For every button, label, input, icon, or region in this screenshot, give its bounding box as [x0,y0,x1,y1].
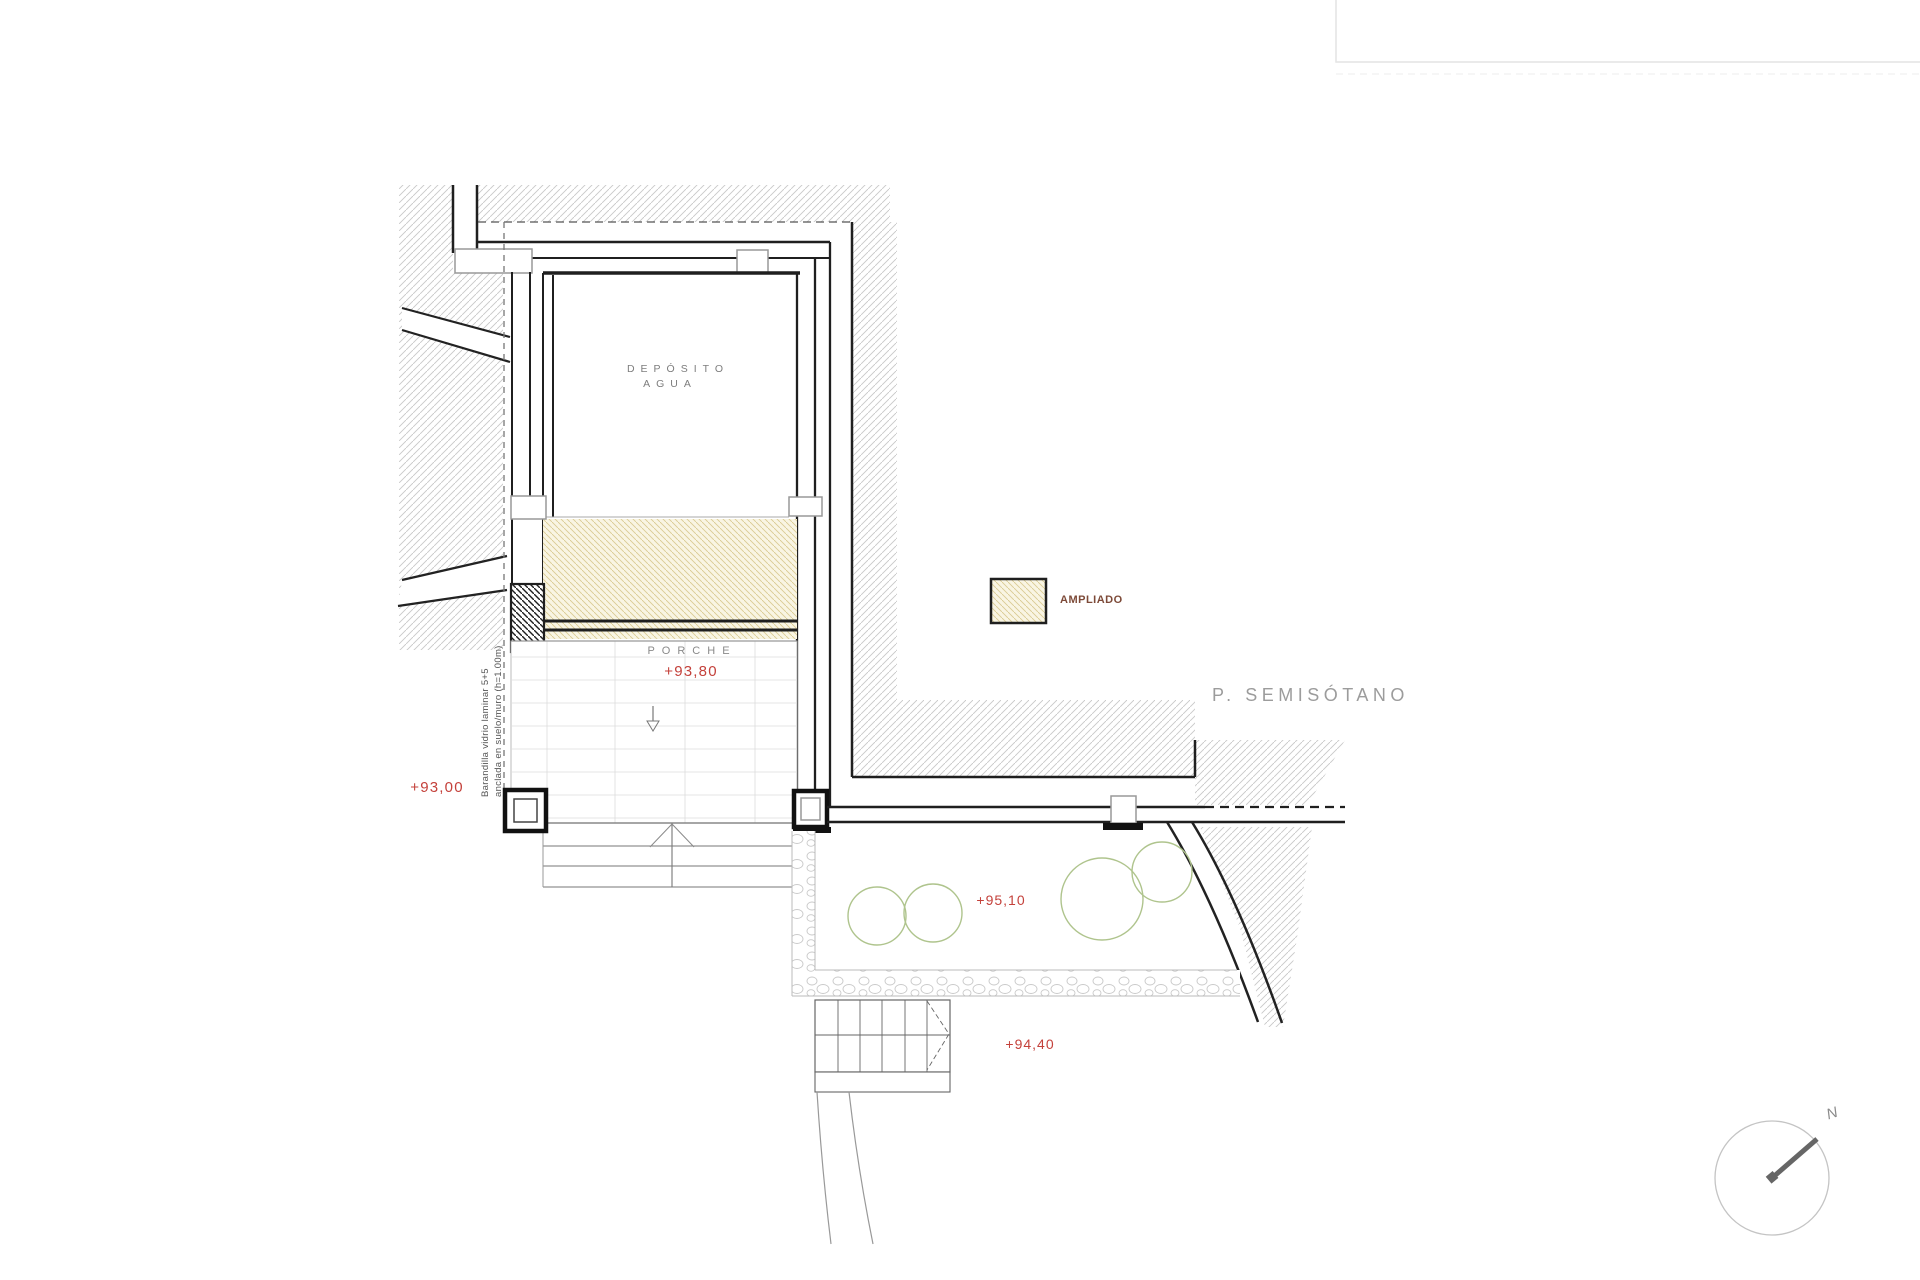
pilaster-left [511,496,546,519]
column-se [794,791,827,827]
sheet-frame [1336,0,1920,74]
garden-path [817,1092,831,1244]
level-terrace: +95,10 [976,893,1025,908]
railing-note-line1: Barandilla vidrio laminar 5+5 [479,645,492,797]
north-compass-icon [1715,1121,1829,1235]
legend-swatch [991,579,1046,623]
porch-level-label: +93,80 [664,664,718,681]
exterior-stairs [815,1000,950,1244]
floor-plan-canvas [0,0,1920,1280]
railing-note-line2: anclada en suelo/muro (h=1.00m) [492,645,505,797]
room-label-line2: AGUA [643,379,697,391]
porch-label: PORCHE [647,645,736,657]
level-ground-left: +93,00 [410,780,464,797]
room-label-line1: DEPÓSITO [627,364,729,376]
porch-floor [511,641,797,823]
porch-steps [543,823,797,887]
floor-plan-sheet: DEPÓSITO AGUA PORCHE +93,80 +93,00 +95,1… [0,0,1920,1280]
column-sw [505,790,546,831]
legend-label: AMPLIADO [1060,594,1123,606]
plan-title: P. SEMISÓTANO [1212,686,1409,706]
pilaster-right [789,497,822,516]
terrace [792,831,1240,996]
level-stairs: +94,40 [1005,1037,1054,1052]
ampliado-zone [511,496,822,652]
railing-note: Barandilla vidrio laminar 5+5 anclada en… [479,645,505,797]
wall-pilaster [1111,796,1136,823]
